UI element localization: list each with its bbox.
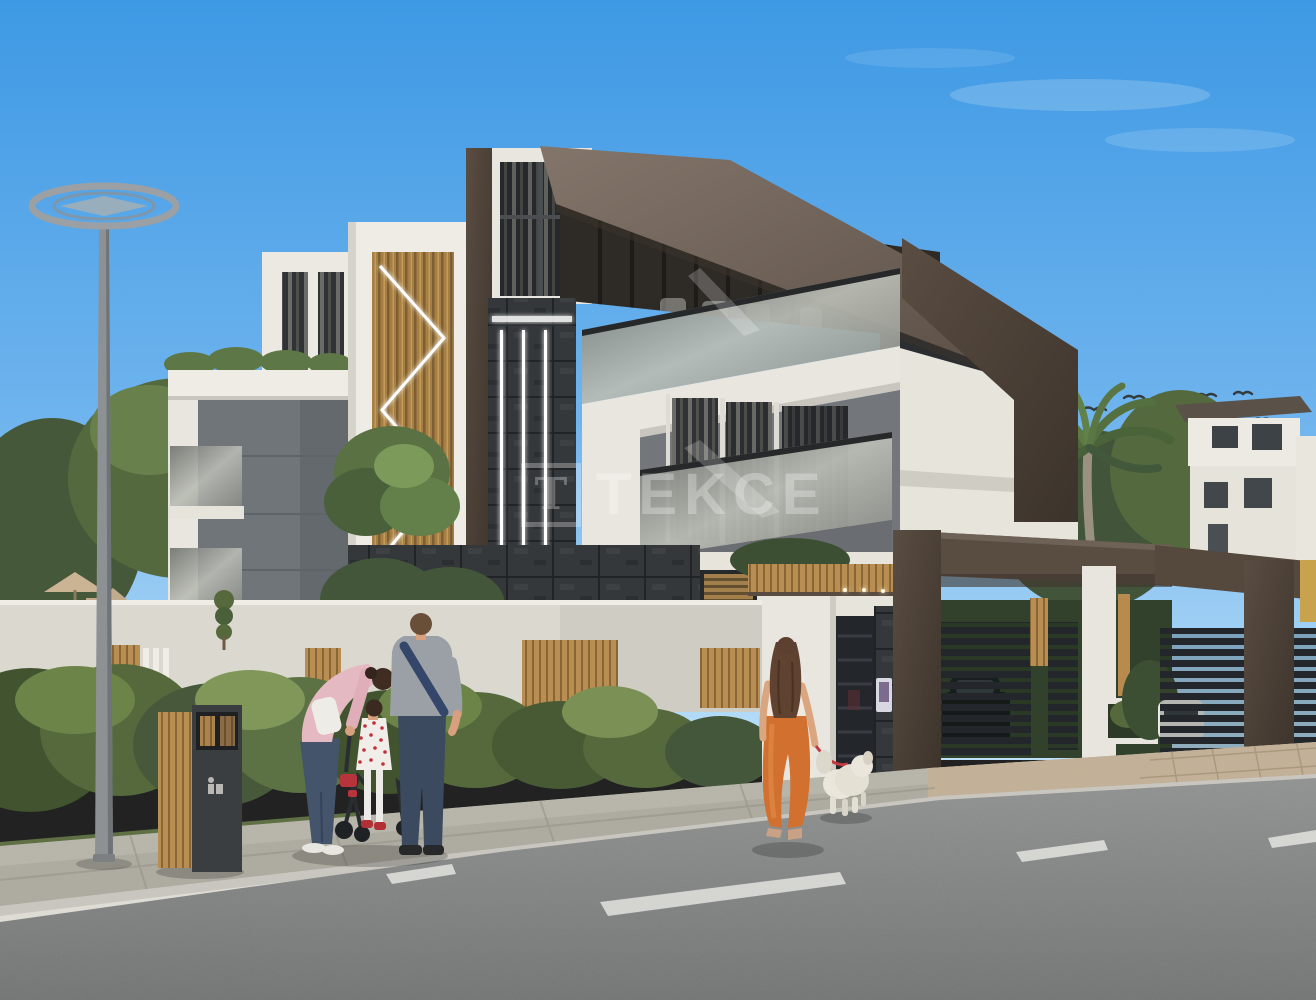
gold-wood-accent [1030, 598, 1048, 666]
carport-gate-left [941, 622, 1031, 756]
wood-door-accent [1300, 560, 1316, 622]
carport-brown-pillar [893, 530, 941, 792]
architectural-render: T TEKCE [0, 0, 1316, 1000]
carport-gate-right [1048, 622, 1078, 750]
litter-bin [156, 705, 244, 879]
render-scene [0, 0, 1316, 1000]
intercom-panel [876, 678, 892, 712]
